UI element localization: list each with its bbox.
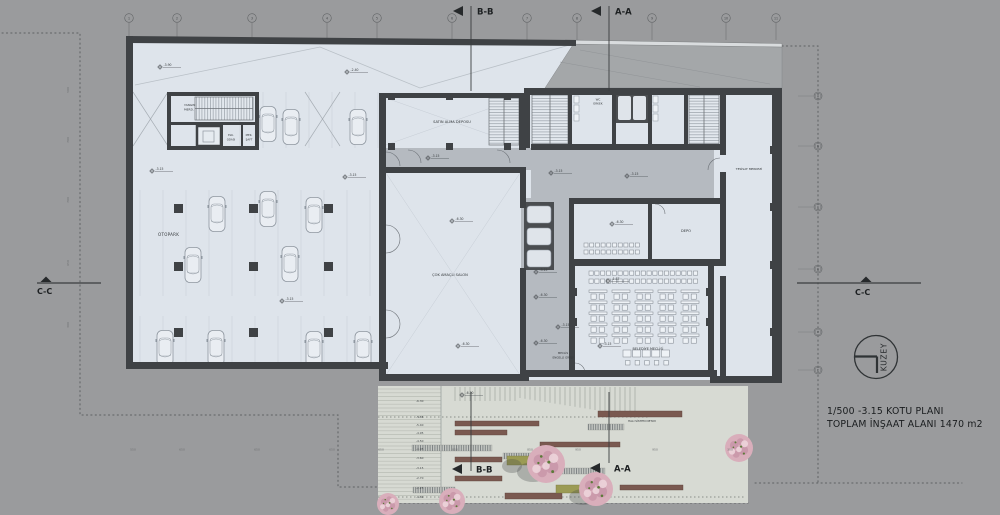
wall [612, 93, 616, 145]
structural-column [249, 262, 258, 271]
council-seat [688, 279, 692, 283]
council-seat [641, 271, 645, 275]
council-seat [659, 271, 663, 275]
council-desk [635, 312, 653, 314]
stage-seat [613, 243, 617, 247]
stage-seat [607, 243, 611, 247]
council-seat [682, 279, 686, 283]
elevation-value: -3.15 [555, 169, 563, 173]
pilaster [770, 146, 780, 154]
planter-band [455, 430, 507, 435]
council-seat [645, 294, 650, 299]
council-desk [612, 312, 630, 314]
wall [568, 93, 572, 145]
plan-title-line1: 1/500 -3.15 KOTU PLANI [827, 406, 944, 417]
section-bb-bottom-label: B-B [476, 466, 493, 476]
room-label-tesisat: TESİSAT MERKEZİ [735, 166, 763, 171]
council-seat [683, 327, 688, 332]
council-seat [676, 279, 680, 283]
council-seat [622, 338, 627, 343]
council-seat [612, 271, 616, 275]
wall [126, 362, 388, 369]
council-seat [614, 305, 619, 310]
wall [531, 144, 724, 150]
grid-bubble-letter: A [817, 94, 819, 98]
council-desk [658, 323, 676, 325]
council-seat [691, 305, 696, 310]
landscape-elevation-label: -5.85 [416, 415, 424, 419]
council-desk [681, 334, 699, 336]
room-label-mek1: MEK. [246, 133, 253, 137]
pilaster [504, 93, 511, 100]
wall [648, 198, 652, 262]
stage-seat [607, 250, 611, 254]
grid-bubble-number: 5 [376, 16, 378, 20]
wall [710, 376, 782, 383]
section-bb-top-label: B-B [477, 8, 494, 18]
council-seat [591, 305, 596, 310]
council-seat [637, 338, 642, 343]
grid-bubble-number: 6 [451, 16, 453, 20]
parked-car [354, 332, 373, 367]
council-seat [630, 279, 634, 283]
grid-bubble-number: 10 [724, 16, 728, 20]
grid-bubble-number: 4 [326, 16, 328, 20]
structural-column [249, 328, 258, 337]
stage-seat [618, 250, 622, 254]
landscape-elevation-label: -2.25 [416, 486, 424, 490]
wall [720, 276, 726, 377]
council-seat [670, 271, 674, 275]
grid-bubble-number: 9 [651, 16, 653, 20]
council-seat [668, 327, 673, 332]
council-seat [622, 305, 627, 310]
elevation-value: -3.15 [540, 268, 548, 272]
landscape: -6.30-5.85-5.40-4.95-4.50-4.05-3.60-3.15… [377, 386, 753, 515]
stage-seat [630, 243, 634, 247]
wc-fixture [574, 105, 579, 112]
wall [569, 198, 726, 204]
elevation-value: -2.40 [351, 68, 359, 72]
landscape-detail-note: HALI SİSTEM DETAYI [628, 418, 656, 423]
inner-wall [241, 125, 243, 148]
wall [720, 172, 726, 262]
elevator [197, 126, 221, 146]
stage-seat [601, 243, 605, 247]
dimension-label-bottom: 950 [652, 448, 658, 452]
council-seat [668, 294, 673, 299]
council-seat [599, 316, 604, 321]
council-seat [606, 271, 610, 275]
council-seat [635, 279, 639, 283]
grid-bubble-letter: B [817, 144, 819, 148]
podium-chair [654, 361, 659, 366]
council-seat [645, 305, 650, 310]
council-seat [660, 327, 665, 332]
elevation-value: -6.30 [456, 217, 464, 221]
podium-desk [642, 350, 650, 357]
council-seat [624, 271, 628, 275]
council-seat [647, 271, 651, 275]
elevator-car [633, 96, 646, 120]
structural-column [174, 204, 183, 213]
structural-column [249, 204, 258, 213]
council-seat [599, 294, 604, 299]
elevation-value: -6.30 [540, 339, 548, 343]
elevator-car [527, 206, 551, 223]
council-desk [681, 312, 699, 314]
dimension-label-bottom: 850 [452, 448, 458, 452]
podium-desk [633, 350, 641, 357]
room-label-engelli1: MECLİS [558, 350, 569, 355]
grid-bubble-letter: E [817, 330, 819, 334]
council-desk [589, 312, 607, 314]
council-seat [693, 279, 697, 283]
room-label-satin-alma: SATIN ALMA DEPOSU [433, 120, 471, 124]
council-seat [668, 316, 673, 321]
landscape-elevation-label: -3.60 [416, 456, 424, 460]
council-seat [660, 294, 665, 299]
elevation-value: -3.15 [604, 342, 612, 346]
room-label-meclis: BELEDİYE MECLİSİ [633, 346, 664, 351]
planter-band [505, 493, 562, 499]
elevation-value: -3.15 [349, 173, 357, 177]
section-aa-bottom-label: A-A [614, 465, 631, 475]
wall [379, 93, 386, 381]
wall [569, 198, 574, 264]
canopy [545, 40, 782, 88]
podium-desk [623, 350, 631, 357]
council-seat [599, 327, 604, 332]
council-desk [658, 334, 676, 336]
council-desk [589, 334, 607, 336]
council-seat [622, 327, 627, 332]
council-seat [691, 316, 696, 321]
inner-wall [171, 122, 257, 125]
parked-car [305, 198, 324, 233]
pilaster [446, 93, 453, 100]
podium-chair [645, 361, 650, 366]
floor-plan-page: -6.30-5.85-5.40-4.95-4.50-4.05-3.60-3.15… [0, 0, 1000, 515]
section-cc-left-label: C-C [37, 287, 52, 296]
council-seat [670, 279, 674, 283]
council-seat [688, 271, 692, 275]
elevation-value: -3.15 [562, 323, 570, 327]
wall [569, 259, 575, 371]
pilaster [388, 143, 395, 150]
wc-fixture [653, 114, 658, 121]
council-desk [612, 301, 630, 303]
wall [521, 370, 717, 377]
elevator-car [527, 228, 551, 245]
parked-car [305, 332, 324, 367]
council-seat [668, 338, 673, 343]
council-desk [635, 323, 653, 325]
podium-desk [652, 350, 660, 357]
council-desk [681, 301, 699, 303]
council-desk [612, 290, 630, 292]
grid-bubble-number: 7 [526, 16, 528, 20]
room-label-engelli2: ENGELLİ GİRİŞİ [553, 355, 574, 360]
wall [772, 88, 782, 383]
grid-bubble-number: 8 [576, 16, 578, 20]
council-seat [683, 316, 688, 321]
grid-bubble-number: 11 [774, 16, 778, 20]
council-seat [682, 271, 686, 275]
stage-seat [590, 250, 594, 254]
pilaster [571, 318, 577, 326]
stage-seat [595, 243, 599, 247]
council-seat [683, 294, 688, 299]
stage-seat [584, 250, 588, 254]
council-desk [658, 312, 676, 314]
council-seat [691, 338, 696, 343]
landscape-elevation-label: -4.95 [416, 431, 424, 435]
council-seat [624, 279, 628, 283]
wall [527, 88, 782, 95]
wall [684, 93, 688, 145]
structural-column [324, 328, 333, 337]
council-desk [658, 290, 676, 292]
plan-title-line2: TOPLAM İNŞAAT ALANI 1470 m2 [826, 419, 983, 430]
council-seat [645, 316, 650, 321]
parked-car [259, 107, 278, 142]
parked-car [281, 247, 300, 282]
council-seat [614, 316, 619, 321]
canopy-shape [545, 40, 782, 88]
parked-car [282, 110, 301, 145]
podium-desk [661, 350, 669, 357]
council-seat [630, 271, 634, 275]
council-seat [641, 279, 645, 283]
elevation-value: -3.90 [164, 63, 172, 67]
structural-column [324, 262, 333, 271]
council-desk [589, 301, 607, 303]
pilaster [770, 261, 780, 269]
planter-band [455, 421, 539, 426]
landscape-elevation-label: -3.15 [416, 466, 424, 470]
stage-seat [618, 243, 622, 247]
parked-car [208, 197, 227, 232]
council-seat [599, 305, 604, 310]
elevation-value: -6.30 [462, 342, 470, 346]
council-seat [691, 294, 696, 299]
council-seat [691, 327, 696, 332]
council-desk [658, 301, 676, 303]
council-seat [645, 327, 650, 332]
wall [569, 259, 726, 266]
council-desk [681, 290, 699, 292]
room-label-wc2: ERKEK [593, 102, 602, 106]
structural-column [174, 262, 183, 271]
section-cc-right-label: C-C [855, 288, 870, 297]
pilaster [770, 203, 780, 211]
council-seat [601, 271, 605, 275]
council-seat [664, 271, 668, 275]
council-seat [660, 338, 665, 343]
council-desk [635, 334, 653, 336]
council-seat [589, 279, 593, 283]
council-seat [622, 316, 627, 321]
pilaster [446, 143, 453, 150]
elevation-value: -3.15 [432, 154, 440, 158]
council-seat [653, 271, 657, 275]
council-seat [589, 271, 593, 275]
wall [720, 93, 726, 155]
pilaster [706, 318, 712, 326]
elevation-value: -6.30 [540, 293, 548, 297]
council-seat [591, 316, 596, 321]
parked-car [207, 331, 226, 366]
parked-car [156, 331, 175, 366]
landscape-elevation-label: -1.80 [416, 495, 424, 499]
council-seat [647, 279, 651, 283]
council-seat [683, 338, 688, 343]
elevation-value: -3.15 [631, 172, 639, 176]
planter-band [620, 485, 683, 490]
council-desk [612, 323, 630, 325]
stage-seat [584, 243, 588, 247]
room-label-depo: DEPO [681, 229, 691, 233]
elevation-value: -6.30 [466, 391, 474, 395]
council-seat [591, 294, 596, 299]
stage-seat [624, 250, 628, 254]
elevator-car [527, 250, 551, 267]
council-seat [645, 338, 650, 343]
council-seat [693, 271, 697, 275]
planter-band [598, 411, 682, 417]
council-seat [614, 327, 619, 332]
stage-seat [635, 243, 639, 247]
council-seat [614, 294, 619, 299]
dimension-label-bottom: 650 [329, 448, 335, 452]
council-seat [660, 316, 665, 321]
landscape-elevation-label: -5.40 [416, 423, 424, 427]
elevator-car [618, 96, 631, 120]
council-seat [664, 279, 668, 283]
elevation-value: -1.87 [612, 277, 620, 281]
council-seat [683, 305, 688, 310]
council-seat [637, 316, 642, 321]
stage-seat [601, 250, 605, 254]
room-label-mek2: ŞAFT [246, 138, 253, 142]
compass-label: KUZEY [880, 343, 889, 372]
council-desk [589, 323, 607, 325]
council-seat [618, 271, 622, 275]
council-seat [601, 279, 605, 283]
deck-band [588, 424, 624, 430]
council-seat [635, 271, 639, 275]
dimension-label-left: 500 [66, 87, 70, 93]
council-desk [589, 290, 607, 292]
wc-fixture [574, 114, 579, 121]
planter-band [455, 457, 502, 462]
council-seat [676, 271, 680, 275]
podium-chair [664, 361, 669, 366]
stage-seat [613, 250, 617, 254]
dimension-label-left: 700 [66, 197, 70, 203]
council-seat [637, 294, 642, 299]
room-label-yangin1: YANGIN [184, 103, 195, 107]
council-seat [659, 279, 663, 283]
wc-fixture [574, 96, 579, 103]
dimension-label-left: 700 [66, 137, 70, 143]
council-seat [637, 305, 642, 310]
wall [379, 167, 526, 173]
cherry-tree [439, 488, 465, 514]
pilaster [706, 288, 712, 296]
interior-top-strip [130, 40, 576, 90]
elevation-value: -3.15 [156, 167, 164, 171]
dimension-label-bottom: 850 [527, 448, 533, 452]
council-seat [637, 327, 642, 332]
parked-car [184, 248, 203, 283]
council-desk [681, 323, 699, 325]
room-label-elk1: ELK. [228, 133, 234, 137]
council-seat [660, 305, 665, 310]
floor-plan-drawing: -6.30-5.85-5.40-4.95-4.50-4.05-3.60-3.15… [0, 0, 1000, 515]
council-desk [635, 290, 653, 292]
room-label-cok-amacli: ÇOK AMAÇLI SALON [432, 273, 468, 277]
council-desk [635, 301, 653, 303]
pilaster [571, 288, 577, 296]
dimension-label-left: 300 [66, 322, 70, 328]
planter-band [455, 476, 502, 481]
dimension-label-bottom: 950 [575, 448, 581, 452]
wall [708, 259, 714, 371]
dimension-label-bottom: 550 [130, 448, 136, 452]
grid-bubble-letter: C [817, 205, 819, 209]
podium-chair [626, 361, 631, 366]
wall [379, 374, 529, 381]
wall [648, 93, 652, 145]
dimension-label-bottom: 650 [179, 448, 185, 452]
stage-seat [624, 243, 628, 247]
grid-bubble-number: 3 [251, 16, 253, 20]
dimension-label-bottom: 650 [378, 448, 384, 452]
landscape-elevation-label: -2.70 [416, 476, 424, 480]
tree-shadow [502, 459, 522, 473]
wc-fixture [653, 105, 658, 112]
structural-column [174, 328, 183, 337]
council-seat [591, 338, 596, 343]
pilaster [504, 143, 511, 150]
stage-seat [595, 250, 599, 254]
wall [520, 167, 526, 208]
pilaster [388, 93, 395, 100]
wall [519, 93, 526, 150]
podium-chair [635, 361, 640, 366]
dimension-label-left: 650 [66, 260, 70, 266]
elevation-value: -6.30 [616, 220, 624, 224]
council-seat [622, 294, 627, 299]
cherry-tree [579, 472, 613, 506]
grid-bubble-number: 1 [128, 16, 130, 20]
room-label-otopark: OTOPARK [158, 232, 179, 237]
council-seat [591, 327, 596, 332]
section-aa-top-label: A-A [615, 8, 632, 18]
parked-car [349, 110, 368, 145]
council-desk [612, 334, 630, 336]
wall [126, 36, 133, 369]
building [126, 36, 782, 383]
structural-column [324, 204, 333, 213]
council-seat [595, 271, 599, 275]
council-seat [595, 279, 599, 283]
stage-seat [590, 243, 594, 247]
room-label-elk2: ODASI [227, 138, 236, 142]
council-seat [653, 279, 657, 283]
